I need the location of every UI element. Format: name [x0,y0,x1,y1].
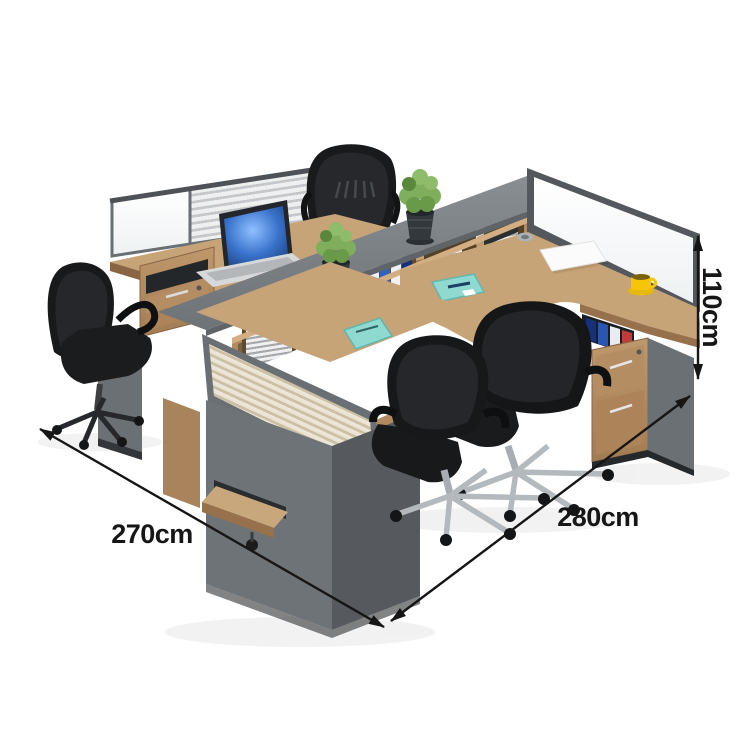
workstation-scene: 270cm 280cm 110cm [0,0,750,750]
chair-mesh [397,345,478,430]
cable-grommet [517,233,533,242]
gas-lift [508,446,516,470]
drawer-lock [197,286,202,291]
pedestal-side [648,338,694,470]
drawer-lock [637,350,642,355]
pedestal-cabinet-right [592,338,694,476]
wood-pillar [163,398,200,508]
dimension-height: 110cm [697,236,727,379]
product-photo: 270cm 280cm 110cm [0,0,750,750]
width-label: 270cm [111,519,193,549]
pedestal-drawer-2 [596,390,644,455]
chair-mesh [482,310,580,402]
depth-label: 280cm [557,502,639,532]
height-label: 110cm [697,267,727,347]
